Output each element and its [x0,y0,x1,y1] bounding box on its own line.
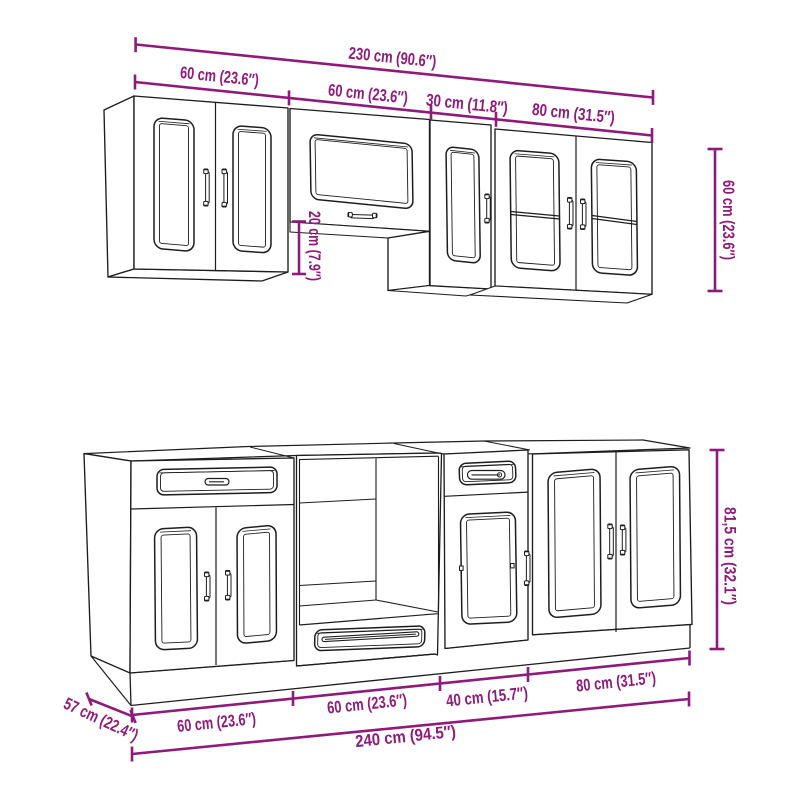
svg-text:60 cm (23.6″): 60 cm (23.6″) [719,180,738,260]
svg-text:20 cm (7.9″): 20 cm (7.9″) [305,211,324,281]
svg-text:81,5 cm (32.1″): 81,5 cm (32.1″) [721,507,740,605]
